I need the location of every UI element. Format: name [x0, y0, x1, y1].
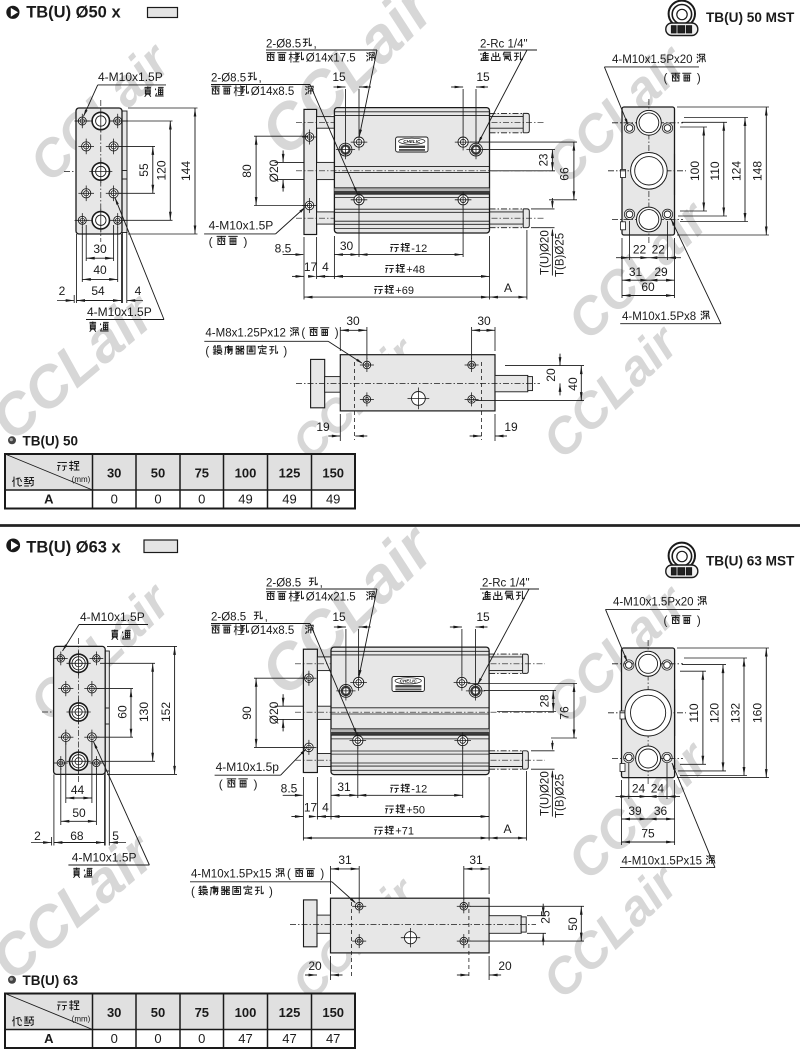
svg-text:47: 47	[326, 1031, 340, 1046]
svg-text:2-Rc 1/4": 2-Rc 1/4"	[482, 578, 530, 590]
svg-text:4-M10x1.5P: 4-M10x1.5P	[209, 219, 274, 233]
svg-text:132: 132	[728, 703, 742, 723]
svg-text:2-Ø8.5: 2-Ø8.5	[266, 578, 301, 590]
svg-text:(: (	[209, 235, 213, 249]
svg-text:100: 100	[688, 161, 702, 181]
svg-text:120: 120	[707, 703, 721, 723]
svg-text:15: 15	[476, 70, 490, 84]
svg-text:150: 150	[322, 1005, 344, 1020]
svg-text:Ø20: Ø20	[267, 159, 281, 182]
svg-text:2: 2	[34, 829, 41, 843]
svg-text:0: 0	[198, 1031, 205, 1046]
svg-text:22: 22	[633, 243, 647, 257]
svg-text:17: 17	[304, 801, 318, 815]
svg-text:39: 39	[628, 804, 642, 818]
svg-text:30: 30	[107, 1005, 121, 1020]
svg-text:(mm): (mm)	[72, 475, 91, 484]
svg-text:100: 100	[235, 1005, 257, 1020]
svg-text:50: 50	[151, 466, 165, 481]
svg-text:20: 20	[308, 959, 322, 973]
svg-text:2-Ø8.5: 2-Ø8.5	[211, 612, 246, 624]
svg-text:47: 47	[282, 1031, 296, 1046]
svg-text:152: 152	[159, 702, 173, 722]
svg-text:20: 20	[498, 959, 512, 973]
svg-text:4-M10x1.5Px20: 4-M10x1.5Px20	[613, 597, 694, 609]
svg-text:4: 4	[135, 284, 142, 298]
svg-text:,: ,	[259, 73, 262, 85]
svg-text:28: 28	[539, 695, 551, 708]
svg-text:CHELIC: CHELIC	[403, 139, 421, 144]
svg-text:,: ,	[320, 578, 323, 590]
svg-text:8.5: 8.5	[281, 782, 298, 796]
svg-text:Ø14x21.5: Ø14x21.5	[306, 592, 356, 604]
svg-text:125: 125	[279, 466, 301, 481]
svg-text:49: 49	[238, 492, 252, 507]
svg-text:31: 31	[338, 853, 352, 867]
svg-text:): )	[243, 235, 247, 249]
svg-text:4-M10x1.5Px20: 4-M10x1.5Px20	[612, 54, 693, 66]
svg-text:150: 150	[322, 466, 344, 481]
svg-text:4-M10x1.5p: 4-M10x1.5p	[216, 760, 280, 774]
svg-text:4-M10x1.5P: 4-M10x1.5P	[80, 610, 145, 624]
svg-text:31: 31	[469, 853, 483, 867]
svg-text:TB(U) 63 MST: TB(U) 63 MST	[706, 554, 795, 569]
svg-text:+48: +48	[406, 264, 425, 276]
svg-text:22: 22	[652, 243, 666, 257]
svg-text:Ø20: Ø20	[267, 701, 281, 724]
svg-text:2-Ø8.5: 2-Ø8.5	[266, 39, 301, 51]
svg-text:90: 90	[240, 706, 254, 720]
svg-text:8.5: 8.5	[275, 242, 292, 256]
svg-text:2-Ø8.5: 2-Ø8.5	[211, 73, 246, 85]
svg-text:5: 5	[112, 829, 119, 843]
svg-text:125: 125	[279, 1005, 301, 1020]
svg-text:T(B)Ø25: T(B)Ø25	[555, 233, 567, 277]
svg-text:54: 54	[91, 284, 105, 298]
svg-text:Ø14x8.5: Ø14x8.5	[251, 625, 294, 637]
svg-text:A: A	[44, 492, 54, 507]
svg-text:110: 110	[708, 161, 722, 180]
svg-text:,: ,	[314, 39, 317, 51]
svg-text:29: 29	[654, 265, 668, 279]
svg-text:4-M10x1.5Px8: 4-M10x1.5Px8	[622, 311, 696, 323]
svg-text:60: 60	[115, 705, 129, 719]
svg-text:148: 148	[751, 161, 765, 181]
svg-text:Ø14x17.5: Ø14x17.5	[306, 53, 356, 65]
svg-text:CHELIC: CHELIC	[400, 679, 418, 684]
svg-text:A: A	[504, 281, 512, 295]
svg-text:0: 0	[111, 1031, 118, 1046]
svg-text:66: 66	[558, 167, 572, 181]
svg-text:19: 19	[316, 420, 330, 434]
svg-text:17: 17	[304, 260, 318, 274]
svg-text:31: 31	[629, 265, 643, 279]
svg-text:160: 160	[751, 703, 765, 723]
svg-text:31: 31	[337, 780, 351, 794]
svg-text:120: 120	[155, 160, 169, 180]
svg-text:0: 0	[198, 492, 205, 507]
svg-text:A: A	[503, 822, 511, 836]
svg-text:,: ,	[265, 612, 268, 624]
svg-text:49: 49	[282, 492, 296, 507]
svg-text:30: 30	[477, 314, 491, 328]
svg-text:30: 30	[340, 239, 354, 253]
svg-text:(: (	[664, 616, 668, 628]
svg-text:(: (	[219, 777, 223, 791]
svg-text:24: 24	[632, 782, 646, 796]
svg-text:25: 25	[539, 910, 553, 924]
svg-text:100: 100	[235, 466, 257, 481]
svg-text:): )	[697, 73, 701, 85]
svg-text:55: 55	[137, 163, 151, 177]
svg-text:44: 44	[71, 783, 85, 797]
svg-text:20: 20	[544, 368, 558, 382]
svg-text:T(B)Ø25: T(B)Ø25	[555, 774, 567, 818]
svg-text:-12: -12	[411, 784, 427, 796]
svg-text:0: 0	[154, 1031, 161, 1046]
svg-text:50: 50	[72, 806, 86, 820]
svg-text:19: 19	[504, 420, 518, 434]
svg-text:-12: -12	[411, 243, 427, 255]
svg-text:(: (	[664, 73, 668, 85]
svg-text:68: 68	[70, 829, 84, 843]
svg-text:75: 75	[195, 466, 209, 481]
svg-text:TB(U) Ø50 x: TB(U) Ø50 x	[26, 4, 121, 22]
svg-text:49: 49	[326, 492, 340, 507]
svg-text:60: 60	[641, 280, 655, 294]
svg-text:+69: +69	[395, 285, 414, 297]
svg-text:30: 30	[107, 466, 121, 481]
svg-text:2-Rc 1/4": 2-Rc 1/4"	[480, 39, 528, 51]
svg-text:130: 130	[137, 702, 151, 722]
svg-text:75: 75	[195, 1005, 209, 1020]
svg-text:80: 80	[240, 164, 254, 178]
svg-text:4-M10x1.5P: 4-M10x1.5P	[72, 851, 137, 865]
svg-text:TB(U) 50: TB(U) 50	[23, 433, 79, 448]
svg-text:): )	[320, 869, 324, 881]
svg-text:4-M8x1.25Px12: 4-M8x1.25Px12	[205, 328, 286, 340]
svg-text:124: 124	[729, 161, 743, 181]
svg-text:+71: +71	[395, 826, 414, 838]
svg-text:Ø14x8.5: Ø14x8.5	[251, 86, 294, 98]
svg-text:A: A	[44, 1031, 54, 1046]
svg-text:15: 15	[332, 610, 346, 624]
svg-text:40: 40	[93, 263, 107, 277]
svg-text:50: 50	[151, 1005, 165, 1020]
svg-text:T(U)Ø20: T(U)Ø20	[540, 771, 552, 816]
svg-text:柱: 柱	[233, 84, 245, 98]
svg-text:(: (	[301, 328, 305, 340]
svg-text:4-M10x1.5P: 4-M10x1.5P	[98, 70, 163, 84]
svg-text:15: 15	[332, 70, 346, 84]
svg-text:): )	[254, 777, 258, 791]
svg-text:110: 110	[687, 703, 701, 722]
svg-text:柱: 柱	[288, 590, 300, 604]
svg-text:24: 24	[651, 782, 665, 796]
svg-text:0: 0	[154, 492, 161, 507]
svg-text:144: 144	[179, 161, 193, 181]
svg-text:(: (	[287, 869, 291, 881]
svg-text:4: 4	[322, 801, 329, 815]
svg-text:4-M10x1.5Px15: 4-M10x1.5Px15	[191, 869, 272, 881]
svg-text:柱: 柱	[288, 51, 300, 65]
svg-text:(: (	[191, 887, 195, 899]
svg-text:(: (	[205, 346, 209, 358]
svg-text:15: 15	[476, 610, 490, 624]
svg-text:TB(U) 63: TB(U) 63	[23, 973, 79, 988]
svg-text:36: 36	[654, 804, 668, 818]
svg-text:2: 2	[59, 284, 66, 298]
svg-text:4-M10x1.5Px15: 4-M10x1.5Px15	[622, 856, 703, 868]
svg-text:75: 75	[641, 827, 655, 841]
svg-text:): )	[283, 346, 287, 358]
svg-text:23: 23	[539, 154, 551, 167]
svg-text:4: 4	[322, 260, 329, 274]
svg-text:): )	[697, 616, 701, 628]
svg-text:30: 30	[93, 242, 107, 256]
svg-text:47: 47	[238, 1031, 252, 1046]
svg-text:TB(U) 50 MST: TB(U) 50 MST	[706, 10, 795, 25]
svg-text:4-M10x1.5P: 4-M10x1.5P	[87, 305, 152, 319]
svg-text:(mm): (mm)	[72, 1015, 91, 1024]
svg-text:40: 40	[566, 377, 580, 391]
svg-text:): )	[269, 887, 273, 899]
svg-text:0: 0	[111, 492, 118, 507]
svg-text:柱: 柱	[233, 623, 245, 637]
svg-text:): )	[335, 328, 339, 340]
svg-text:T(U)Ø20: T(U)Ø20	[540, 230, 552, 275]
svg-text:30: 30	[346, 314, 360, 328]
svg-text:TB(U) Ø63 x: TB(U) Ø63 x	[26, 539, 121, 557]
svg-text:50: 50	[566, 917, 580, 931]
svg-text:+50: +50	[406, 805, 425, 817]
svg-text:76: 76	[558, 706, 572, 720]
